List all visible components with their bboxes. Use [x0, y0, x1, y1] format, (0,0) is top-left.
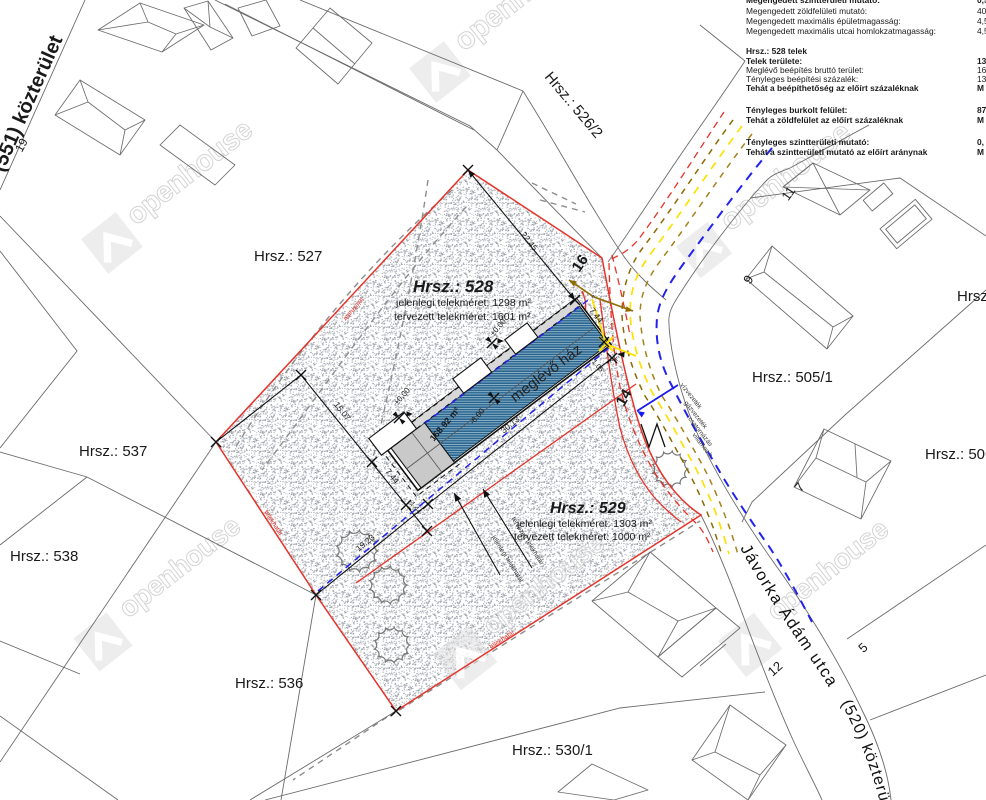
svg-text:87: 87: [977, 105, 986, 115]
svg-text:Megengedett maximális épületma: Megengedett maximális épületmagasság:: [746, 16, 901, 26]
svg-text:Hrsz.: 536: Hrsz.: 536: [235, 675, 303, 692]
svg-text:Hrsz.:: Hrsz.:: [957, 288, 986, 305]
svg-text:Hrsz.: 537: Hrsz.: 537: [79, 443, 147, 460]
svg-text:Hrsz.: 527: Hrsz.: 527: [254, 248, 322, 265]
svg-text:jelenlegi telekméret: 1303 m²: jelenlegi telekméret: 1303 m²: [516, 518, 652, 530]
svg-text:Megengedett zöldfelületi mutat: Megengedett zöldfelületi mutató:: [746, 6, 867, 16]
svg-text:Tényleges szintterületi mutató: Tényleges szintterületi mutató:: [746, 137, 869, 147]
svg-text:pK: pK: [610, 356, 619, 363]
svg-text:Hrsz.: 538: Hrsz.: 538: [10, 548, 78, 565]
svg-text:Hrsz.: 528 telek: Hrsz.: 528 telek: [746, 46, 807, 56]
svg-text:M: M: [977, 83, 984, 93]
svg-text:Megengedett szintterületi muta: Megengedett szintterületi mutató:: [746, 0, 880, 5]
svg-text:Hrsz.: 529: Hrsz.: 529: [550, 500, 626, 517]
svg-text:Tényleges burkolt felület:: Tényleges burkolt felület:: [746, 105, 847, 115]
svg-text:M: M: [977, 115, 984, 125]
svg-text:Hrsz.: 506: Hrsz.: 506: [925, 446, 986, 463]
svg-text:Hrsz.: 530/1: Hrsz.: 530/1: [512, 742, 593, 759]
svg-text:Tehát a zöldfelület az előírt: Tehát a zöldfelület az előírt százalékna…: [746, 115, 903, 125]
svg-text:0,5: 0,5: [977, 0, 986, 5]
svg-text:tervezett telekméret: 1000 m²: tervezett telekméret: 1000 m²: [514, 531, 651, 543]
svg-text:Tehát a beépíthetőség az előír: Tehát a beépíthetőség az előírt százalék…: [746, 83, 919, 93]
svg-text:40: 40: [977, 6, 986, 16]
svg-text:4,5: 4,5: [977, 16, 986, 26]
svg-text:Hrsz.: 505/1: Hrsz.: 505/1: [752, 369, 833, 386]
svg-text:Megengedett maximális utcai ho: Megengedett maximális utcai homlokzatmag…: [746, 26, 936, 36]
svg-text:M: M: [977, 147, 984, 157]
svg-text:Hrsz.: 528: Hrsz.: 528: [413, 277, 494, 296]
svg-text:jelenlegi telekméret: 1298 m²: jelenlegi telekméret: 1298 m²: [395, 297, 531, 309]
svg-text:tervezett telekméret: 1601 m²: tervezett telekméret: 1601 m²: [394, 311, 531, 323]
svg-text:4,5: 4,5: [977, 26, 986, 36]
svg-text:Tehát a szintterületi mutató a: Tehát a szintterületi mutató az előírt a…: [746, 147, 928, 157]
svg-text:0,: 0,: [977, 137, 984, 147]
